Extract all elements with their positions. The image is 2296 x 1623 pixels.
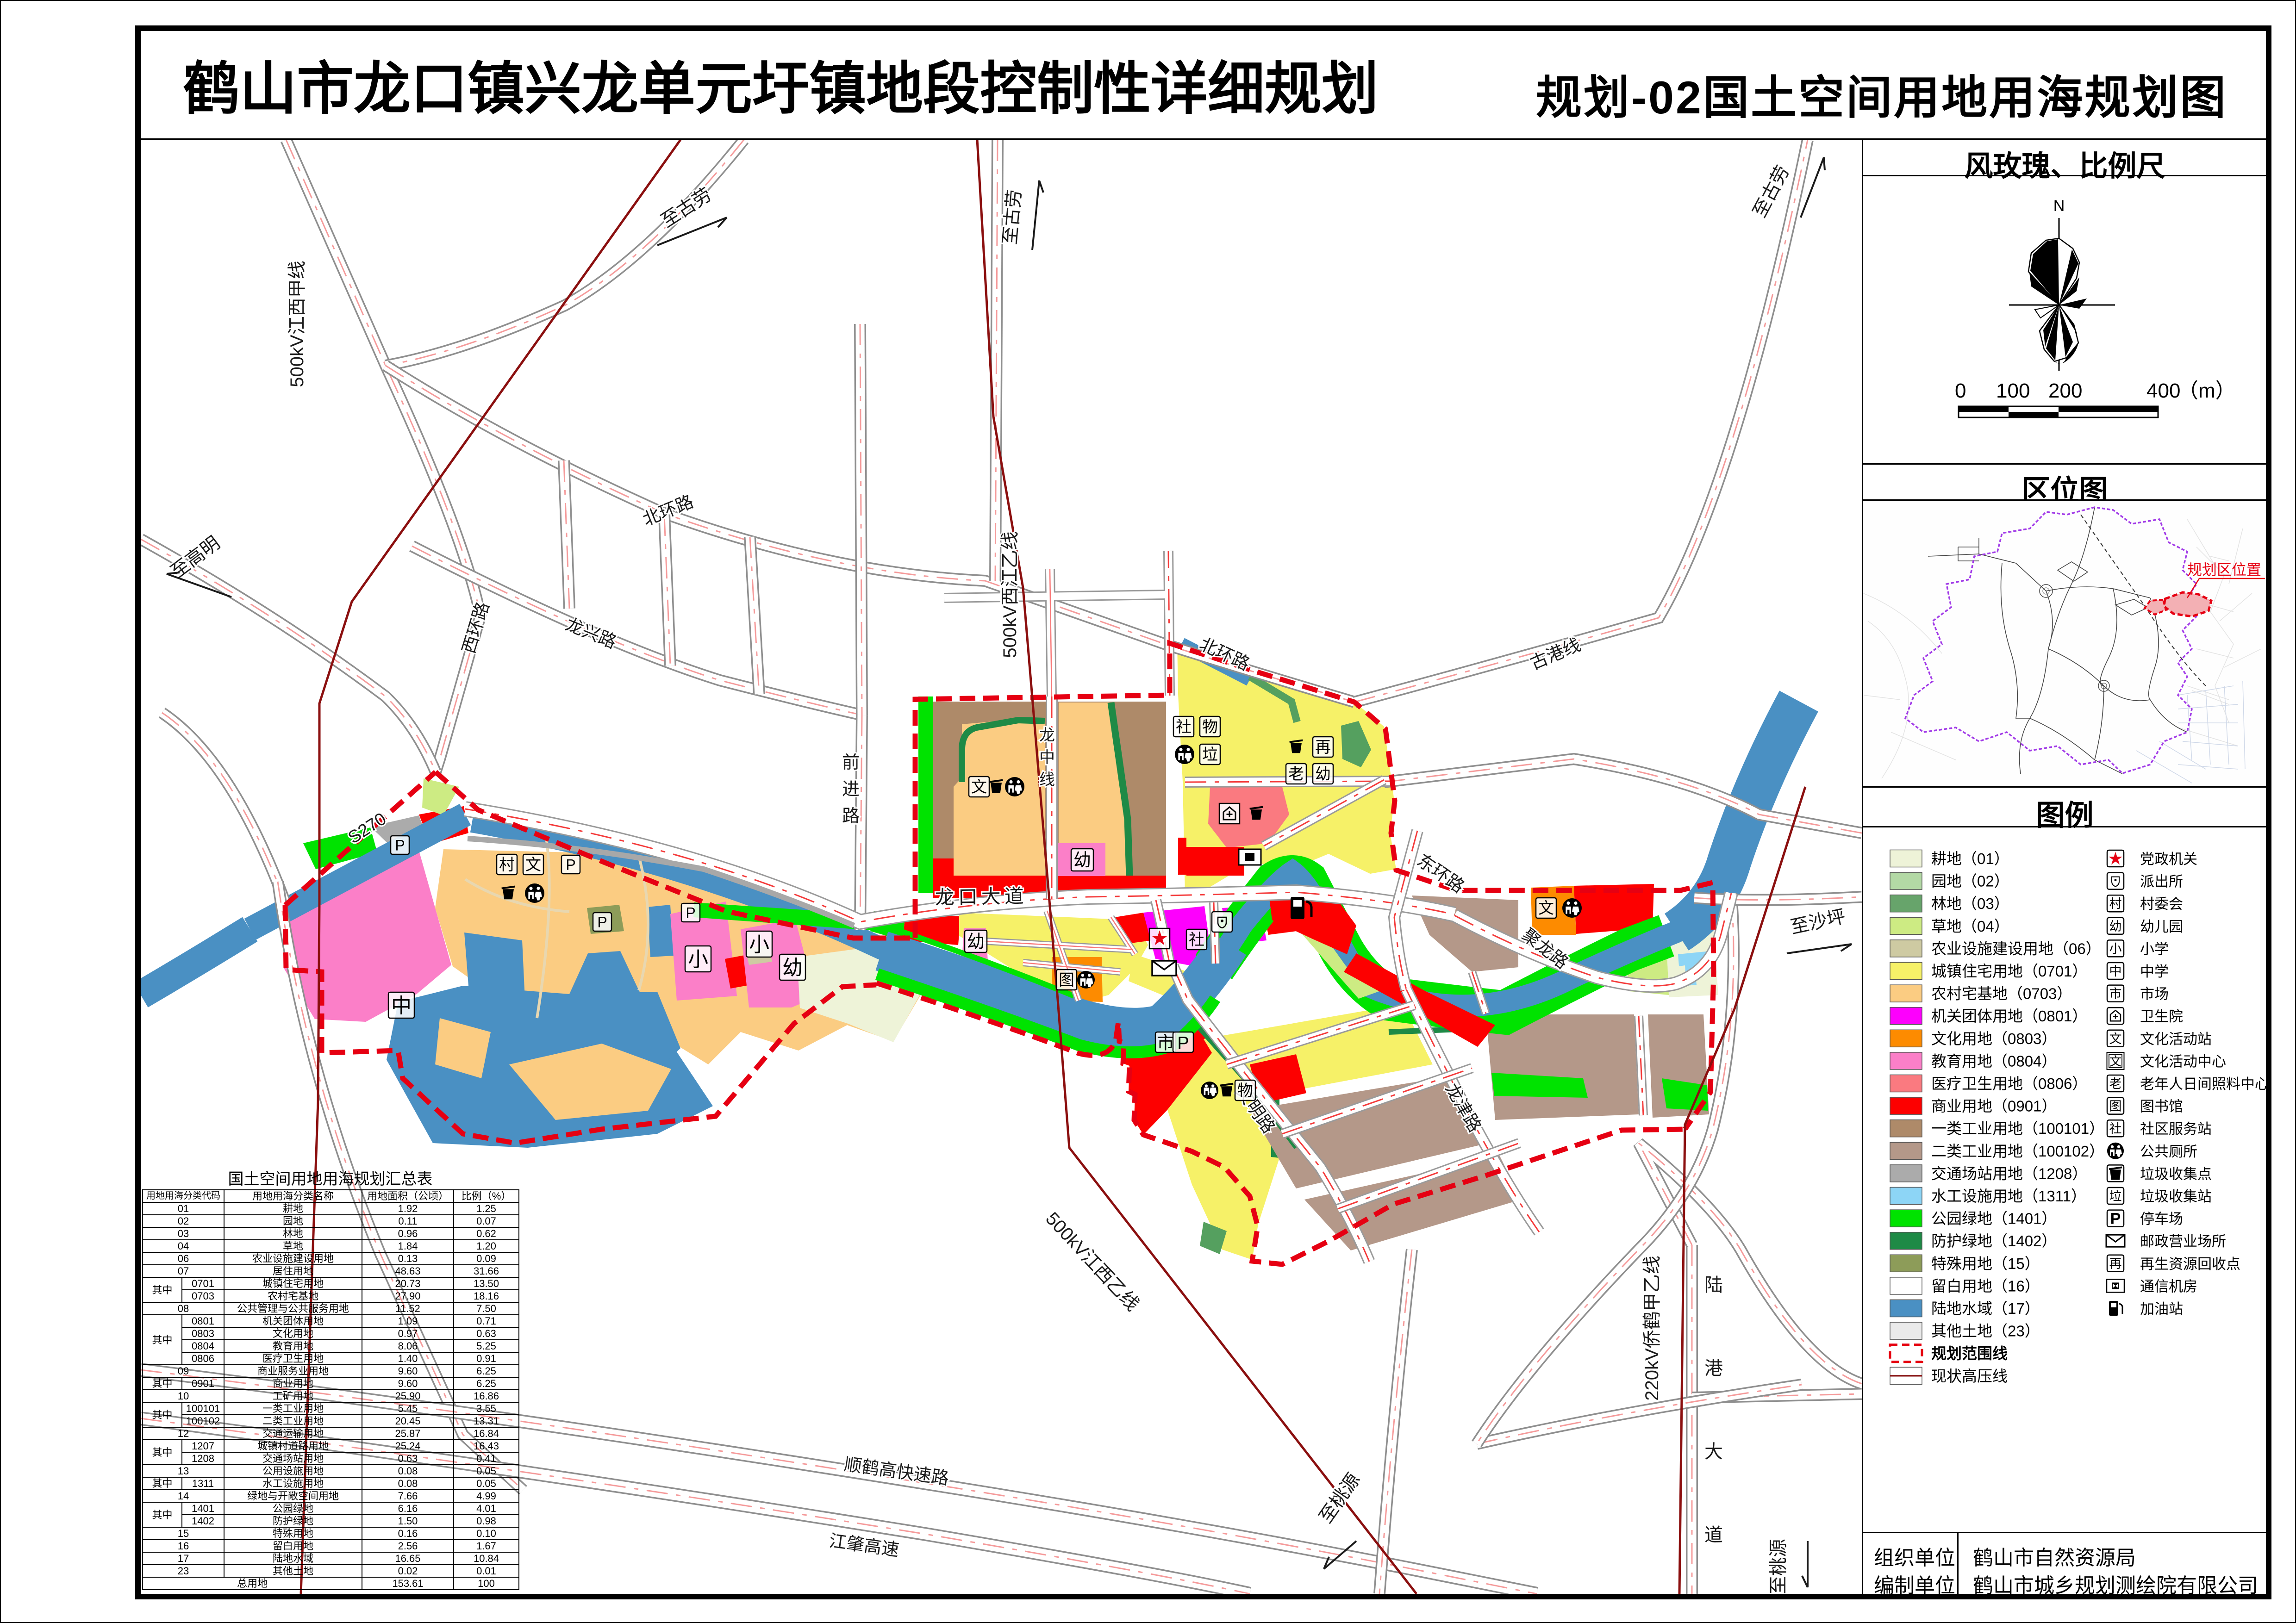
svg-text:规划范围线: 规划范围线: [1931, 1345, 2008, 1362]
svg-text:中学: 中学: [2140, 964, 2169, 980]
svg-text:机关团体用地（0801）: 机关团体用地（0801）: [1931, 1007, 2087, 1025]
svg-text:派出所: 派出所: [2140, 874, 2183, 890]
svg-text:社: 社: [1176, 718, 1192, 736]
svg-text:再: 再: [2109, 1257, 2122, 1271]
svg-text:陆地水域（17）: 陆地水域（17）: [1931, 1300, 2040, 1317]
svg-text:0: 0: [1955, 379, 1966, 402]
svg-text:通信机房: 通信机房: [2140, 1278, 2197, 1294]
svg-text:中: 中: [1039, 749, 1055, 766]
svg-text:小: 小: [2109, 942, 2122, 956]
svg-text:市: 市: [1157, 1034, 1174, 1053]
svg-text:200: 200: [2048, 379, 2082, 402]
svg-text:文化用地（0803）: 文化用地（0803）: [1931, 1030, 2057, 1047]
svg-text:医疗卫生用地（0806）: 医疗卫生用地（0806）: [1931, 1075, 2087, 1092]
svg-text:中: 中: [391, 995, 412, 1017]
svg-text:至桃源: 至桃源: [1768, 1539, 1789, 1594]
svg-text:公园绿地（1401）: 公园绿地（1401）: [1931, 1210, 2057, 1227]
svg-text:P: P: [686, 905, 695, 921]
svg-text:社: 社: [2109, 1122, 2122, 1136]
svg-text:龙: 龙: [1039, 727, 1055, 744]
svg-text:幼: 幼: [967, 933, 985, 952]
svg-text:P: P: [597, 914, 607, 931]
svg-text:规划区位置: 规划区位置: [2187, 561, 2261, 578]
svg-text:城镇住宅用地（0701）: 城镇住宅用地（0701）: [1931, 963, 2087, 980]
svg-text:村: 村: [499, 856, 515, 874]
svg-text:物: 物: [1202, 718, 1218, 736]
svg-text:卫生院: 卫生院: [2140, 1008, 2183, 1025]
svg-text:物: 物: [1237, 1082, 1253, 1100]
svg-text:垃: 垃: [2109, 1189, 2122, 1203]
svg-text:陆: 陆: [1704, 1275, 1723, 1295]
svg-text:垃圾收集站: 垃圾收集站: [2140, 1188, 2212, 1205]
svg-text:村委会: 村委会: [2140, 896, 2183, 912]
svg-text:草地（04）: 草地（04）: [1931, 918, 2009, 935]
svg-text:★: ★: [1150, 927, 1168, 950]
svg-text:★: ★: [2108, 849, 2123, 869]
svg-text:500kV西江乙线: 500kV西江乙线: [1000, 531, 1020, 658]
svg-text:交通场站用地（1208）: 交通场站用地（1208）: [1931, 1165, 2087, 1182]
svg-text:特殊用地（15）: 特殊用地（15）: [1931, 1255, 2040, 1272]
svg-text:老年人日间照料中心: 老年人日间照料中心: [2140, 1076, 2266, 1092]
svg-text:中: 中: [2109, 964, 2122, 978]
svg-text:老: 老: [1288, 765, 1304, 783]
svg-text:商业用地（0901）: 商业用地（0901）: [1931, 1098, 2057, 1115]
svg-text:再生资源回收点: 再生资源回收点: [2140, 1256, 2240, 1272]
svg-text:线: 线: [1039, 771, 1055, 789]
svg-text:垃: 垃: [1202, 746, 1218, 764]
svg-text:水工设施用地（1311）: 水工设施用地（1311）: [1931, 1188, 2086, 1205]
svg-text:防护绿地（1402）: 防护绿地（1402）: [1931, 1232, 2057, 1250]
svg-text:教育用地（0804）: 教育用地（0804）: [1931, 1052, 2057, 1070]
svg-text:小: 小: [749, 933, 769, 956]
svg-text:P: P: [395, 837, 405, 854]
svg-text:图: 图: [2109, 1100, 2122, 1113]
svg-text:图: 图: [1059, 971, 1074, 989]
svg-text:400: 400: [2146, 379, 2180, 402]
svg-text:幼: 幼: [782, 957, 803, 979]
svg-text:龙口大道: 龙口大道: [935, 885, 1028, 908]
svg-text:一类工业用地（100101）: 一类工业用地（100101）: [1931, 1120, 2104, 1137]
svg-text:加油站: 加油站: [2140, 1301, 2183, 1317]
svg-text:耕地（01）: 耕地（01）: [1931, 850, 2009, 867]
svg-text:邮政营业场所: 邮政营业场所: [2140, 1233, 2226, 1250]
svg-text:市场: 市场: [2140, 986, 2169, 1002]
svg-text:垃圾收集点: 垃圾收集点: [2140, 1166, 2212, 1182]
svg-text:路: 路: [842, 807, 860, 826]
svg-text:农村宅基地（0703）: 农村宅基地（0703）: [1931, 985, 2072, 1002]
svg-text:100: 100: [1996, 379, 2030, 402]
svg-text:幼: 幼: [1073, 851, 1091, 871]
svg-text:文: 文: [2109, 1032, 2122, 1046]
svg-text:公共厕所: 公共厕所: [2140, 1144, 2197, 1160]
svg-text:N: N: [2053, 197, 2065, 215]
svg-text:文: 文: [2109, 1054, 2121, 1068]
svg-text:220kV侨鹤甲乙线: 220kV侨鹤甲乙线: [1642, 1256, 1662, 1400]
svg-text:农业设施建设用地（06）: 农业设施建设用地（06）: [1931, 940, 2101, 957]
svg-text:市: 市: [2109, 987, 2122, 1001]
svg-text:社区服务站: 社区服务站: [2140, 1121, 2212, 1137]
svg-text:P: P: [1177, 1034, 1189, 1053]
svg-text:园地（02）: 园地（02）: [1931, 873, 2009, 890]
svg-text:文: 文: [525, 856, 541, 874]
svg-text:留白用地（16）: 留白用地（16）: [1931, 1277, 2040, 1294]
svg-text:党政机关: 党政机关: [2140, 851, 2197, 867]
svg-text:停车场: 停车场: [2140, 1211, 2183, 1227]
svg-text:P: P: [566, 857, 575, 873]
svg-text:P: P: [2110, 1210, 2121, 1228]
svg-text:小: 小: [688, 948, 708, 971]
svg-text:500kV江西甲线: 500kV江西甲线: [287, 261, 307, 387]
svg-text:再: 再: [1315, 739, 1331, 756]
svg-text:现状高压线: 现状高压线: [1931, 1368, 2008, 1385]
svg-text:其他土地（23）: 其他土地（23）: [1931, 1323, 2040, 1340]
svg-text:前: 前: [842, 753, 860, 772]
svg-text:二类工业用地（100102）: 二类工业用地（100102）: [1931, 1143, 2104, 1160]
svg-text:图书馆: 图书馆: [2140, 1099, 2183, 1115]
svg-text:（m）: （m）: [2178, 379, 2236, 402]
svg-text:道: 道: [1704, 1525, 1723, 1545]
svg-text:幼: 幼: [1315, 765, 1331, 783]
svg-text:文: 文: [1538, 900, 1554, 917]
svg-text:文化活动中心: 文化活动中心: [2140, 1053, 2226, 1070]
svg-text:林地（03）: 林地（03）: [1931, 895, 2009, 912]
svg-text:社: 社: [1189, 931, 1204, 949]
svg-text:港: 港: [1704, 1358, 1723, 1379]
svg-text:小学: 小学: [2140, 941, 2169, 957]
svg-text:幼儿园: 幼儿园: [2140, 919, 2183, 935]
svg-text:文: 文: [971, 778, 987, 796]
svg-text:老: 老: [2109, 1077, 2122, 1091]
svg-text:大: 大: [1704, 1442, 1723, 1462]
svg-text:村: 村: [2109, 897, 2122, 911]
svg-text:进: 进: [842, 780, 860, 799]
svg-text:幼: 幼: [2109, 920, 2122, 933]
svg-text:文化活动站: 文化活动站: [2140, 1031, 2212, 1047]
